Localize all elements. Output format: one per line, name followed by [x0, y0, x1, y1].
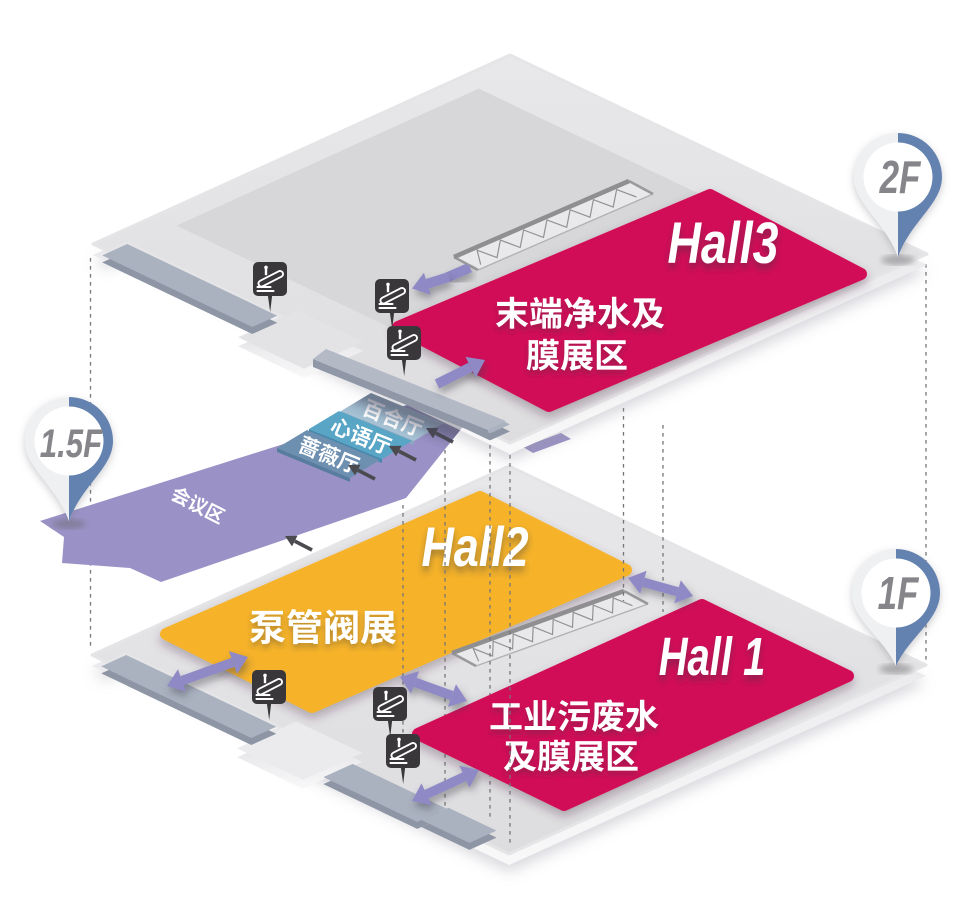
svg-text:Hall2: Hall2 [421, 515, 528, 578]
svg-text:1F: 1F [878, 567, 920, 619]
svg-text:Hall3: Hall3 [668, 211, 779, 276]
svg-text:2F: 2F [879, 151, 922, 203]
svg-text:Hall 1: Hall 1 [659, 627, 766, 687]
svg-text:1.5F: 1.5F [40, 421, 103, 466]
